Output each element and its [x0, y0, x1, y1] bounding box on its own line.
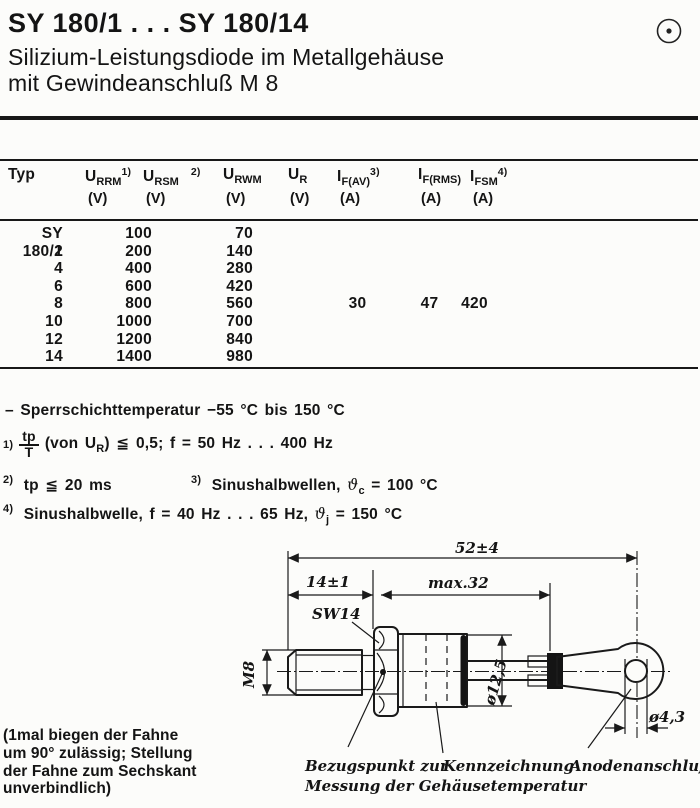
footnote-ref: 4)	[498, 166, 508, 178]
cell-u_rrm: 200	[92, 243, 152, 261]
note-ref: 2)	[3, 474, 13, 486]
cell-typ: 10	[8, 313, 63, 331]
unit-label: (A)	[473, 191, 493, 207]
note-text: (von UR) ≦ 0,5; f = 50 Hz . . . 400 Hz	[45, 434, 333, 455]
header-subscript: F(RMS)	[423, 174, 462, 186]
cell-typ: 2	[8, 243, 63, 261]
note-text-pre: (von U	[45, 435, 96, 452]
table-row: 88005603047420	[0, 295, 560, 313]
table-top-rule	[0, 159, 698, 161]
unit-label: (V)	[290, 191, 309, 207]
theta-symbol: ϑ	[347, 476, 358, 494]
cell-typ: 6	[8, 278, 63, 296]
header-symbol: U	[288, 166, 299, 183]
cell-u_rwm: 280	[193, 260, 253, 278]
cell-u_rwm: 140	[193, 243, 253, 261]
hex-face-arc	[379, 696, 384, 713]
crimp-weld	[547, 653, 563, 689]
bend-note-line: um 90° zulässig; Stellung	[3, 745, 197, 763]
note-ref: 3)	[191, 474, 201, 486]
cell-u_rrm: 400	[92, 260, 152, 278]
cell-typ: 12	[8, 331, 63, 349]
cell-typ: 8	[8, 295, 63, 313]
hex-face-arc	[379, 631, 384, 649]
header-subscript: FSM	[475, 176, 498, 188]
ref-point-label-2: Messung der Gehäusetemperatur	[304, 777, 587, 795]
footnote-ref: 3)	[370, 166, 380, 178]
dim-case-label: max.32	[428, 574, 489, 592]
lug-hole	[625, 660, 647, 682]
cell-i_fsm: 420	[447, 295, 502, 313]
leader-line	[436, 702, 443, 753]
note-text: tp ≦ 20 ms	[24, 477, 112, 494]
fraction-denominator: T	[25, 446, 34, 459]
cell-u_rwm: 70	[193, 225, 253, 243]
cell-u_rrm: 1200	[92, 331, 152, 349]
reference-point-dot	[380, 669, 386, 675]
cell-u_rwm: 560	[193, 295, 253, 313]
cell-u_rrm: 600	[92, 278, 152, 296]
header-subscript: F(AV)	[342, 176, 371, 188]
col-header-ur: UR	[288, 166, 307, 186]
note-ref: 4)	[3, 503, 13, 515]
dim-stud-label: 14±1	[306, 573, 350, 591]
note-temp-range: – Sperrschichttemperatur −55 °C bis 150 …	[5, 402, 345, 420]
circle-dot-icon	[652, 14, 686, 48]
marking-label: Kennzeichnung	[442, 757, 574, 775]
header-rule	[0, 116, 698, 120]
table-row: 141400980	[0, 348, 560, 366]
note-text: Sinushalbwellen,	[212, 477, 341, 494]
note-text: Sinushalbwelle, f = 40 Hz . . . 65 Hz,	[24, 506, 308, 523]
table-body: SY 180/110070220014044002806600420880056…	[0, 225, 560, 366]
unit-label: (V)	[226, 191, 245, 207]
datasheet-page: SY 180/1 . . . SY 180/14 Silizium-Leistu…	[0, 0, 700, 808]
table-row: SY 180/110070	[0, 225, 560, 243]
table-row: 4400280	[0, 260, 560, 278]
table-row: 6600420	[0, 278, 560, 296]
table-header-rule	[0, 219, 698, 221]
case-outline	[398, 634, 467, 707]
col-header-ursm: URSM2)	[143, 166, 201, 188]
note-1: 1) tp T (von UR) ≦ 0,5; f = 50 Hz . . . …	[3, 430, 333, 459]
note-text-rest: ) ≦ 0,5; f = 50 Hz . . . 400 Hz	[104, 435, 333, 452]
thread-label: M8	[240, 660, 258, 689]
anode-label: Anodenanschluß	[568, 757, 700, 775]
header-symbol: U	[85, 168, 96, 185]
col-header-urrm: URRM1)	[85, 166, 131, 188]
table-row: 121200840	[0, 331, 560, 349]
dim-total-label: 52±4	[455, 539, 499, 557]
page-title: SY 180/1 . . . SY 180/14	[8, 8, 309, 39]
cell-i_fav: 30	[330, 295, 385, 313]
case-dia-label: ø12,5	[480, 657, 510, 708]
bend-note: (1mal biegen der Fahne um 90° zulässig; …	[3, 727, 197, 798]
note-ref: 1)	[3, 439, 13, 451]
subtitle-line-1: Silizium-Leistungsdiode im Metallgehäuse	[8, 44, 444, 70]
cell-u_rrm: 1000	[92, 313, 152, 331]
header-symbol: U	[143, 168, 154, 185]
footnote-ref: 1)	[121, 166, 131, 178]
table-row: 2200140	[0, 243, 560, 261]
stud-outline	[288, 650, 362, 695]
cell-u_rwm: 980	[193, 348, 253, 366]
hole-dia-label: ø4,3	[648, 708, 685, 726]
footnote-ref: 2)	[191, 166, 201, 178]
page-subtitle: Silizium-Leistungsdiode im Metallgehäuse…	[8, 44, 444, 96]
note-subscript: c	[358, 485, 364, 497]
bend-note-line: (1mal biegen der Fahne	[3, 727, 197, 745]
header-subscript: RWM	[234, 174, 261, 186]
note-4: 4) Sinushalbwelle, f = 40 Hz . . . 65 Hz…	[3, 503, 402, 526]
unit-label: (V)	[88, 191, 107, 207]
header-label: Typ	[8, 166, 35, 183]
col-header-ifsm: IFSM4)	[470, 166, 508, 188]
subtitle-line-2: mit Gewindeanschluß M 8	[8, 70, 444, 96]
cell-typ: 14	[8, 348, 63, 366]
note-2: 2) tp ≦ 20 ms	[3, 474, 112, 495]
cell-typ: 4	[8, 260, 63, 278]
cell-u_rrm: 1400	[92, 348, 152, 366]
fraction-tp-over-t: tp T	[19, 430, 39, 459]
header-subscript: R	[299, 174, 307, 186]
cell-u_rwm: 840	[193, 331, 253, 349]
cell-u_rwm: 420	[193, 278, 253, 296]
header-symbol: U	[223, 166, 234, 183]
bend-note-line: unverbindlich)	[3, 780, 197, 798]
col-header-ifrms: IF(RMS)	[418, 166, 461, 186]
col-header-urwm: URWM	[223, 166, 262, 186]
note-text-post: = 150 °C	[336, 506, 403, 523]
theta-symbol: ϑ	[315, 505, 326, 523]
table-bottom-rule	[0, 367, 698, 369]
unit-label: (A)	[421, 191, 441, 207]
cell-u_rwm: 700	[193, 313, 253, 331]
unit-label: (A)	[340, 191, 360, 207]
header-subscript: RRM	[96, 176, 121, 188]
note-subscript: j	[326, 514, 329, 526]
table-row: 101000700	[0, 313, 560, 331]
cell-u_rrm: 100	[92, 225, 152, 243]
col-header-typ: Typ	[8, 166, 35, 184]
wrench-size-label: SW14	[312, 605, 361, 623]
ref-point-label-1: Bezugspunkt zur	[304, 757, 449, 775]
note-3: 3) Sinushalbwellen, ϑc = 100 °C	[191, 474, 438, 497]
unit-label: (V)	[146, 191, 165, 207]
note-text-post: = 100 °C	[371, 477, 438, 494]
bend-note-line: der Fahne zum Sechskant	[3, 763, 197, 781]
leader-line	[348, 674, 382, 747]
cell-u_rrm: 800	[92, 295, 152, 313]
col-header-ifav: IF(AV)3)	[337, 166, 380, 188]
header-subscript: RSM	[154, 176, 178, 188]
